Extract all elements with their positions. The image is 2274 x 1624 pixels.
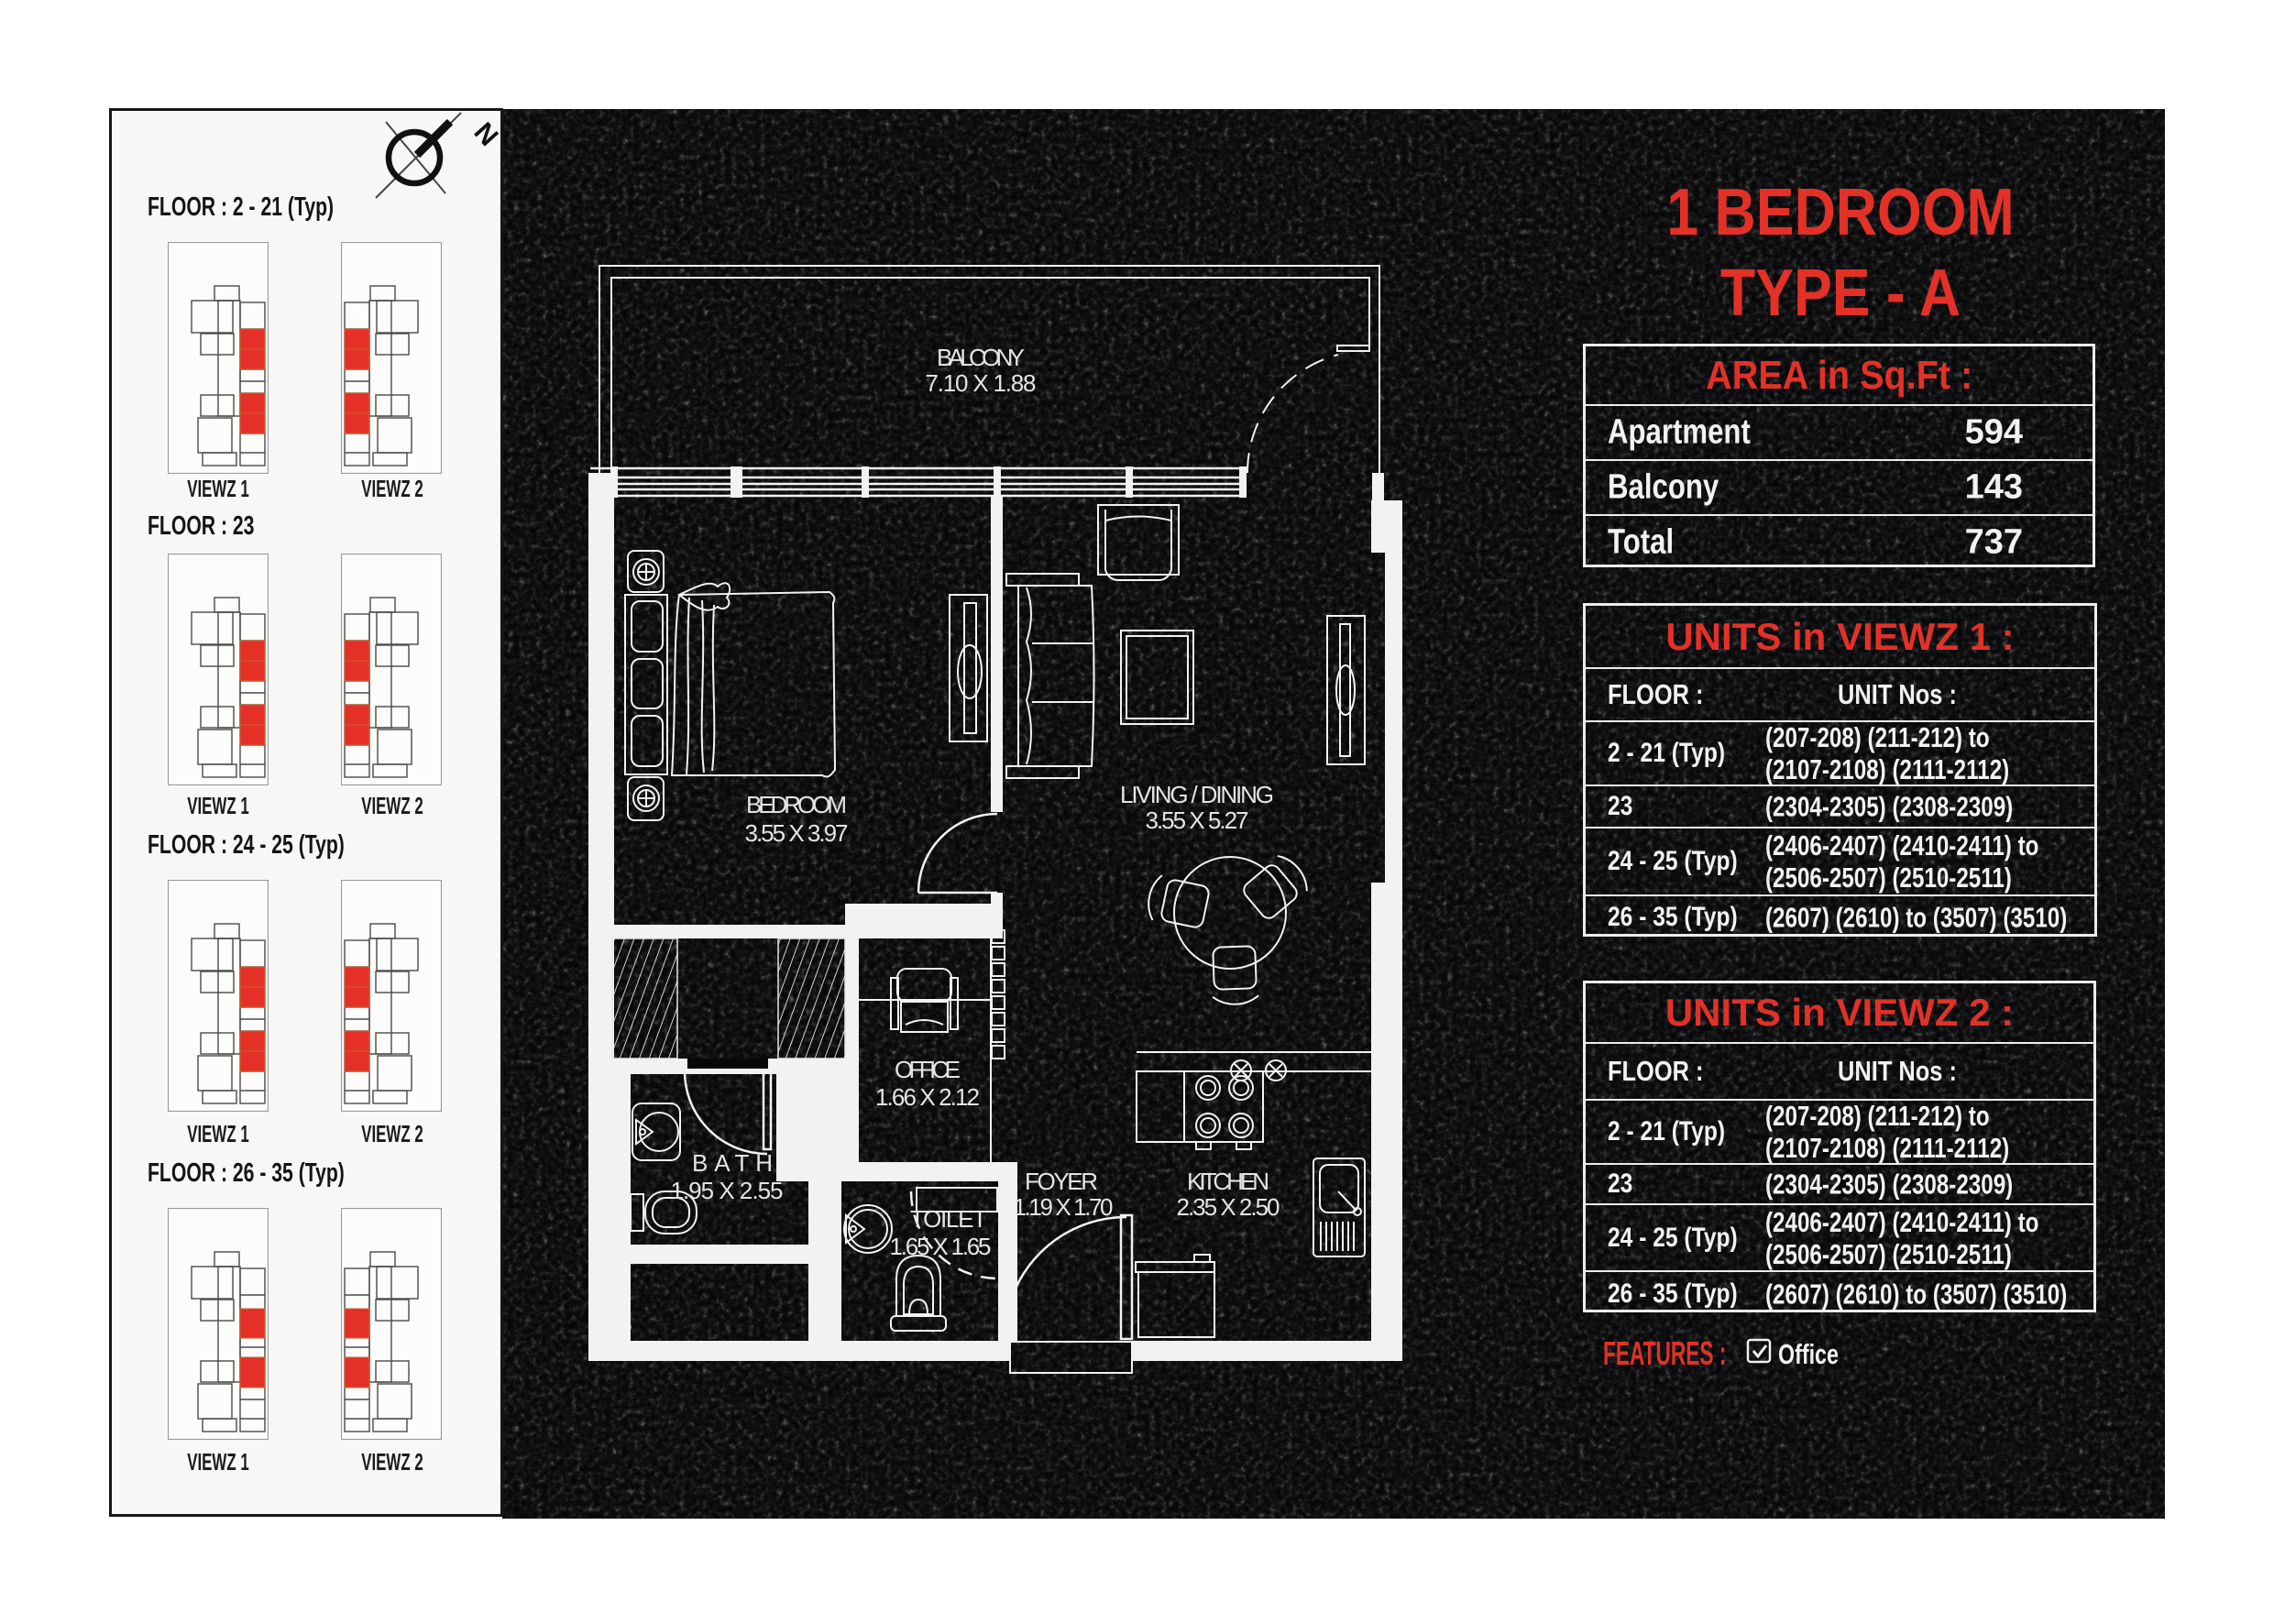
svg-text:N: N [468,117,504,152]
svg-text:2.35 X 2.50: 2.35 X 2.50 [1177,1193,1280,1221]
svg-text:LIVING / DINING: LIVING / DINING [1120,781,1274,808]
svg-text:FOYER: FOYER [1025,1168,1098,1195]
svg-text:3.55 X 3.97: 3.55 X 3.97 [745,819,849,847]
svg-text:1.19 X 1.70: 1.19 X 1.70 [1014,1193,1114,1221]
svg-text:BATH: BATH [692,1149,773,1177]
svg-text:KITCHEN: KITCHEN [1187,1168,1269,1195]
svg-text:3.55 X 5.27: 3.55 X 5.27 [1146,807,1249,834]
svg-text:1.65 X 1.65: 1.65 X 1.65 [890,1233,992,1260]
svg-text:1.66 X 2.12: 1.66 X 2.12 [875,1083,980,1111]
svg-text:1.95 X 2.55: 1.95 X 2.55 [671,1177,784,1204]
svg-text:TOILET: TOILET [910,1205,987,1233]
svg-text:7.10 X 1.88: 7.10 X 1.88 [926,369,1037,397]
svg-text:BEDROOM: BEDROOM [746,791,847,818]
svg-text:OFFICE: OFFICE [895,1056,961,1083]
svg-text:BALCONY: BALCONY [937,344,1025,371]
